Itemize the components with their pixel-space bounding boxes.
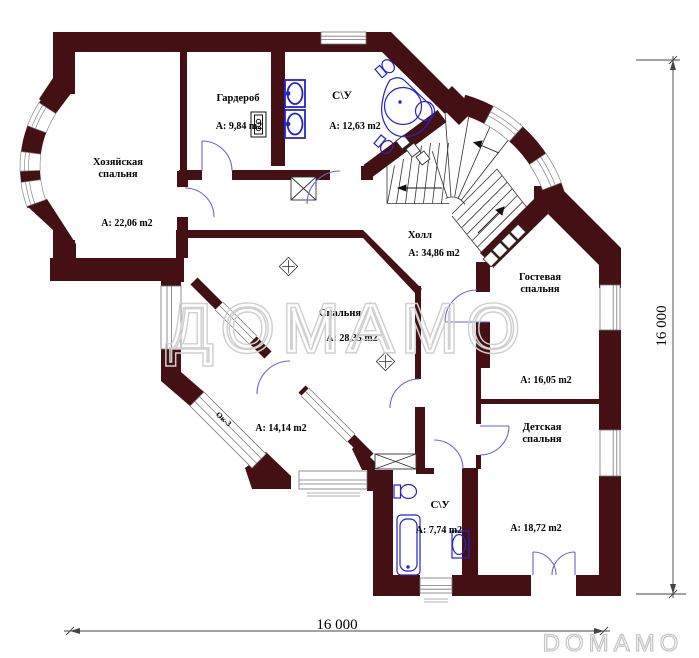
svg-text:Гардероб: Гардероб <box>216 93 259 104</box>
svg-text:А: 34,86 m2: А: 34,86 m2 <box>408 248 459 259</box>
svg-text:16 000: 16 000 <box>316 617 357 633</box>
svg-text:С\У: С\У <box>332 90 353 102</box>
svg-text:Холл: Холл <box>408 230 432 241</box>
svg-text:DOMAMO: DOMAMO <box>543 630 684 657</box>
svg-text:А: 18,72 m2: А: 18,72 m2 <box>510 523 561 534</box>
svg-text:спальня: спальня <box>98 169 138 180</box>
svg-text:А: 14,14 m2: А: 14,14 m2 <box>255 423 306 434</box>
svg-text:А: 7,74 m2: А: 7,74 m2 <box>416 525 462 536</box>
svg-text:Детская: Детская <box>523 422 562 433</box>
svg-text:Хозяйская: Хозяйская <box>93 157 143 168</box>
svg-text:А: 9,84 m2: А: 9,84 m2 <box>216 121 262 132</box>
svg-text:16 000: 16 000 <box>654 305 670 346</box>
svg-text:спальня: спальня <box>522 434 562 445</box>
svg-text:А: 12,63 m2: А: 12,63 m2 <box>329 121 380 132</box>
svg-text:А: 22,06 m2: А: 22,06 m2 <box>101 218 152 229</box>
svg-text:С\У: С\У <box>430 499 449 511</box>
